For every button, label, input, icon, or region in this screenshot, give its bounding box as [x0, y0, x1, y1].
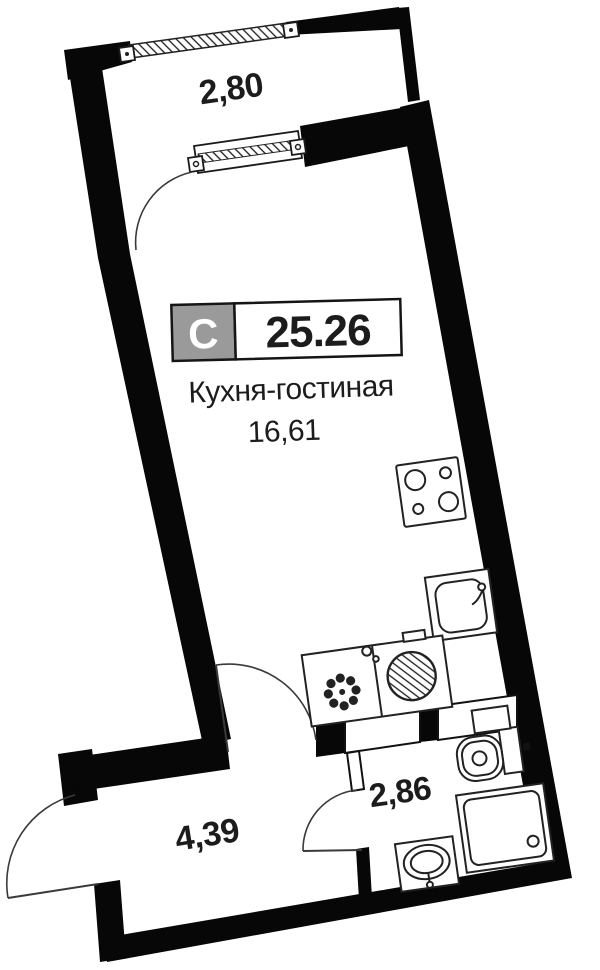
room-door-arc-icon	[216, 664, 316, 740]
bathroom-area-label: 2,86	[367, 769, 434, 814]
top-right-wall-stub	[286, 7, 402, 35]
glazing-post-left-pin	[125, 52, 129, 56]
bottom-left-corner-wall	[94, 880, 126, 962]
kitchen-living-area-label: 16,61	[247, 414, 321, 450]
washbasin-icon	[395, 836, 459, 892]
hall-bath-partition	[347, 751, 364, 791]
total-area-value: 25.26	[265, 306, 371, 358]
vent-shaft	[472, 706, 511, 734]
kitchen-living-name-label: Кухня-гостиная	[188, 369, 394, 409]
shower-tray-icon	[456, 783, 554, 872]
entrance-door-leaf	[8, 884, 98, 898]
balcony-width-label: 2,80	[197, 66, 266, 113]
unit-area-badge: С 25.26	[171, 299, 401, 361]
unit-type-letter: С	[188, 310, 219, 358]
hallway-area-label: 4,39	[172, 811, 241, 859]
bathroom-door-stub	[356, 847, 372, 900]
window-post-right	[290, 139, 306, 155]
balcony-glazing-icon	[129, 23, 289, 58]
bottom-wall	[103, 860, 572, 962]
entrance-door-arc-icon	[7, 795, 75, 898]
kitchen-sink-icon	[425, 569, 497, 641]
floorplan-canvas: С 25.26 2,80 Кухня-гостиная 16,61 4,39 2…	[0, 0, 600, 970]
floorplan-drawing: С 25.26 2,80 Кухня-гостиная 16,61 4,39 2…	[0, 0, 600, 970]
balcony-right-wall	[397, 7, 420, 102]
vent-marker	[523, 742, 531, 750]
balcony-door-arc-icon	[136, 172, 192, 250]
hallway-top-wall	[69, 735, 230, 792]
window-post-left	[188, 156, 204, 172]
bathroom-door-leaf	[303, 850, 362, 851]
kitchen-fixtures	[301, 457, 498, 727]
glazing-post-right-pin	[289, 28, 293, 32]
stove-icon	[396, 457, 466, 527]
bathroom-door-arc-icon	[303, 790, 357, 851]
